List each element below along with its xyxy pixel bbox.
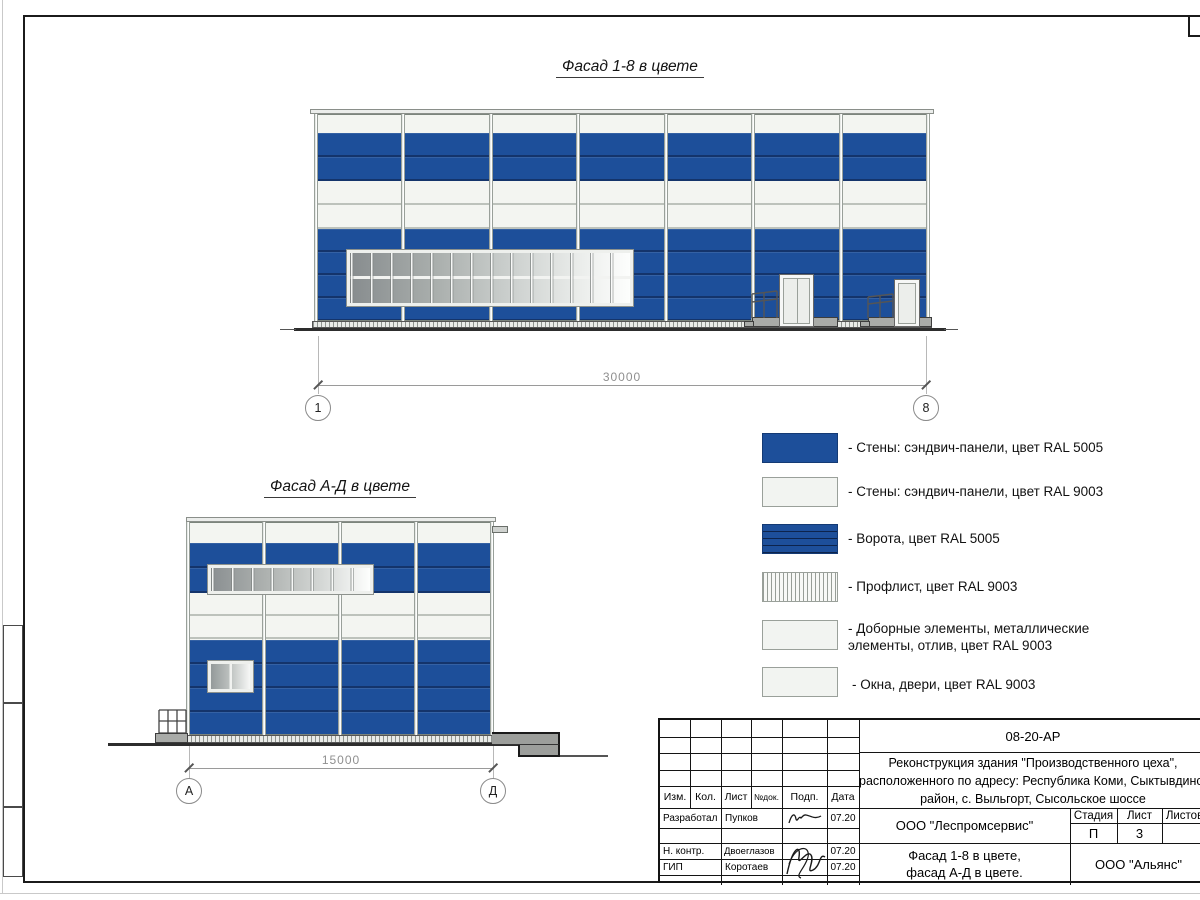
facade-a-d-title: Фасад А-Д в цвете <box>210 478 470 496</box>
corner-stamp-box <box>1188 15 1200 37</box>
dock-step-lower <box>518 745 560 757</box>
title-block-line <box>859 752 1200 753</box>
door-leaf <box>783 278 810 324</box>
dimension-value: 15000 <box>279 753 403 767</box>
railing <box>866 288 896 320</box>
entrance-door-single <box>894 279 920 327</box>
legend-label: - Окна, двери, цвет RAL 9003 <box>852 676 1182 693</box>
drip-edge-pipe <box>492 526 508 533</box>
filing-strip-cell <box>3 625 23 703</box>
ground-line <box>108 743 520 746</box>
list-header: Лист <box>1117 808 1162 823</box>
title-block-line <box>660 770 859 771</box>
title-block-line <box>660 875 859 876</box>
mullion <box>926 114 930 321</box>
axis-marker-8: 8 <box>913 395 939 421</box>
small-window <box>208 661 253 692</box>
signature <box>782 840 828 882</box>
filing-strip-cell <box>3 703 23 807</box>
ribbon-window <box>347 250 633 306</box>
window-glass <box>211 568 370 591</box>
col-data: Дата <box>827 786 859 808</box>
dimension-line <box>189 768 493 769</box>
legend-swatch-walls-ral5005 <box>762 433 838 463</box>
col-kol: Кол. <box>690 786 721 808</box>
mullion <box>664 114 668 321</box>
project-line: район, с. Выльгорт, Сысольское шоссе <box>859 790 1200 808</box>
org-middle: ООО "Леспромсервис" <box>859 808 1070 843</box>
sheet-title: Фасад 1-8 в цвете, фасад А-Д в цвете. <box>859 847 1070 881</box>
signature <box>786 810 824 827</box>
dock-step-upper <box>492 732 560 745</box>
axis-marker-1-label: 1 <box>315 401 322 415</box>
row-date: 07.20 <box>827 808 859 828</box>
mullion <box>186 522 190 735</box>
sheet-title-line: фасад А-Д в цвете. <box>859 864 1070 881</box>
door-leaf <box>898 283 916 324</box>
stage-value: П <box>1070 823 1117 843</box>
dimension-value: 30000 <box>560 370 684 384</box>
legend-swatch-gate-ral5005 <box>762 524 838 554</box>
ladder-base <box>155 733 188 743</box>
ground-line-tail <box>280 329 296 330</box>
door-step <box>744 321 754 327</box>
listov-header: Листов <box>1162 808 1200 823</box>
mullion <box>839 114 843 321</box>
window-glass <box>211 664 250 689</box>
project-line: Реконструкция здания "Производственного … <box>859 754 1200 772</box>
stage-header: Стадия <box>1070 808 1117 823</box>
sheet-title-line: Фасад 1-8 в цвете, <box>859 847 1070 864</box>
project-line: расположенного по адресу: Республика Ком… <box>859 772 1200 790</box>
row-role: Н. контр. <box>663 843 721 859</box>
entrance-door-double <box>779 274 814 327</box>
project-description: Реконструкция здания "Производственного … <box>859 754 1200 808</box>
mullion <box>262 522 266 735</box>
col-list: Лист <box>721 786 751 808</box>
mullion <box>414 522 418 735</box>
legend-label: - Профлист, цвет RAL 9003 <box>848 578 1178 595</box>
title-block-line <box>660 753 859 754</box>
row-role: ГИП <box>663 859 721 875</box>
door-leaf-split <box>797 279 798 323</box>
row-name: Коротаев <box>725 859 781 875</box>
facade-1-8-title-text: Фасад 1-8 в цвете <box>556 58 704 78</box>
legend-label: - Доборные элементы, металлические элеме… <box>848 620 1148 654</box>
axis-marker-d: Д <box>480 778 506 804</box>
row-role: Разработал <box>663 808 721 828</box>
ground-line-tail <box>560 755 608 757</box>
legend-label: - Стены: сэндвич-панели, цвет RAL 9003 <box>848 483 1178 500</box>
drawing-sheet: Фасад 1-8 в цвете 30000 1 8 <box>0 0 1200 900</box>
window-glass <box>350 253 630 303</box>
ground-line-tail <box>944 329 958 330</box>
mullion <box>338 522 342 735</box>
plinth-profiled-sheet <box>186 735 494 743</box>
row-name: Двоеглазов <box>724 843 782 859</box>
col-podp: Подп. <box>782 786 827 808</box>
axis-marker-a-label: А <box>185 784 193 798</box>
col-ndok: №док. <box>751 786 782 808</box>
railing <box>750 284 780 320</box>
sheet-bottom-edge <box>0 893 1200 894</box>
org-right: ООО "Альянс" <box>1070 843 1200 885</box>
title-block-line <box>660 828 859 829</box>
plinth-profiled-sheet <box>312 321 932 328</box>
facade-a-d-title-text: Фасад А-Д в цвете <box>264 478 416 498</box>
legend-label: - Ворота, цвет RAL 5005 <box>848 530 1178 547</box>
ground-line <box>294 328 946 331</box>
axis-marker-a: А <box>176 778 202 804</box>
row-date: 07.20 <box>827 843 859 859</box>
axis-marker-d-label: Д <box>489 784 497 798</box>
col-izm: Изм. <box>660 786 690 808</box>
ladder-frame <box>158 708 187 734</box>
row-date: 07.20 <box>827 859 859 875</box>
axis-marker-8-label: 8 <box>923 401 930 415</box>
legend-swatch-windows-doors <box>762 667 838 697</box>
title-block-line <box>660 737 859 738</box>
axis-marker-1: 1 <box>305 395 331 421</box>
doc-code: 08-20-АР <box>859 720 1200 752</box>
legend-swatch-profiled-sheet <box>762 572 838 602</box>
mullion <box>314 114 318 321</box>
facade-1-8-title: Фасад 1-8 в цвете <box>480 58 780 76</box>
legend-swatch-trim-elements <box>762 620 838 650</box>
dimension-line <box>318 385 926 386</box>
mullion <box>490 522 494 735</box>
legend-label: - Стены: сэндвич-панели, цвет RAL 5005 <box>848 439 1178 456</box>
ribbon-window <box>208 565 373 594</box>
row-name: Пупков <box>725 808 781 828</box>
filing-strip-cell <box>3 807 23 877</box>
legend-swatch-walls-ral9003 <box>762 477 838 507</box>
door-step <box>860 321 870 327</box>
title-block: Изм. Кол. Лист №док. Подп. Дата Разработ… <box>658 718 1200 883</box>
list-value: 3 <box>1117 823 1162 843</box>
